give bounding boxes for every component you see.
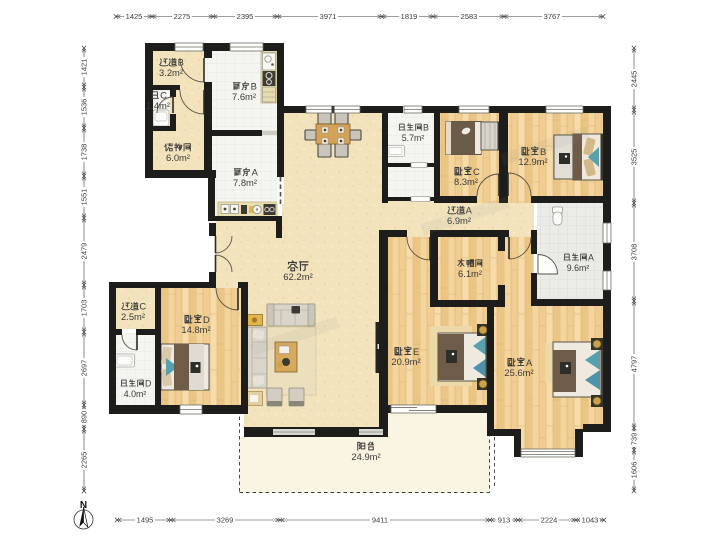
svg-text:4797: 4797 [630,356,639,373]
svg-text:2583: 2583 [461,12,478,21]
svg-text:B: B [178,57,184,68]
svg-text:C: C [139,301,146,312]
svg-text:20.9m²: 20.9m² [391,356,420,367]
svg-text:62.2m²: 62.2m² [283,272,313,283]
svg-text:1536: 1536 [80,99,89,116]
svg-text:3269: 3269 [217,516,234,525]
svg-text:1421: 1421 [80,59,89,76]
svg-text:B: B [251,81,257,92]
svg-text:C: C [160,90,167,101]
svg-text:2479: 2479 [80,243,89,260]
svg-text:3767: 3767 [544,12,561,21]
svg-text:D: D [145,378,151,388]
svg-text:1.4m²: 1.4m² [146,100,170,111]
svg-text:25.6m²: 25.6m² [504,367,533,378]
svg-text:3.2m²: 3.2m² [159,67,183,78]
svg-text:5.7m²: 5.7m² [402,133,425,143]
svg-text:1703: 1703 [80,300,89,317]
svg-text:2224: 2224 [541,516,558,525]
svg-text:3525: 3525 [630,149,639,166]
svg-text:1551: 1551 [80,189,89,206]
svg-text:24.9m²: 24.9m² [351,451,380,462]
svg-text:2395: 2395 [237,12,254,21]
svg-text:890: 890 [80,411,89,424]
svg-text:A: A [252,167,259,178]
svg-text:9411: 9411 [372,516,388,525]
svg-text:6.1m²: 6.1m² [458,268,482,279]
svg-text:1738: 1738 [80,144,89,161]
svg-text:6.0m²: 6.0m² [166,152,190,163]
svg-text:7.8m²: 7.8m² [233,177,257,188]
svg-text:2697: 2697 [80,360,89,377]
svg-text:3971: 3971 [320,12,337,21]
svg-text:1606: 1606 [630,462,639,479]
svg-text:A: A [588,252,594,262]
svg-text:8.3m²: 8.3m² [454,176,478,187]
svg-text:7.6m²: 7.6m² [232,91,256,102]
svg-text:2.5m²: 2.5m² [121,311,145,322]
svg-text:3708: 3708 [630,244,639,261]
svg-text:1819: 1819 [401,12,418,21]
svg-text:2265: 2265 [80,452,89,469]
svg-text:B: B [423,122,429,132]
svg-text:1043: 1043 [582,516,599,525]
svg-text:9.6m²: 9.6m² [567,263,590,273]
svg-text:739: 739 [630,433,639,446]
svg-text:2445: 2445 [630,71,639,88]
svg-text:1495: 1495 [137,516,154,525]
svg-text:1425: 1425 [126,12,143,21]
svg-text:2275: 2275 [174,12,191,21]
svg-text:4.0m²: 4.0m² [124,389,147,399]
svg-text:913: 913 [498,516,511,525]
svg-text:14.8m²: 14.8m² [181,324,210,335]
